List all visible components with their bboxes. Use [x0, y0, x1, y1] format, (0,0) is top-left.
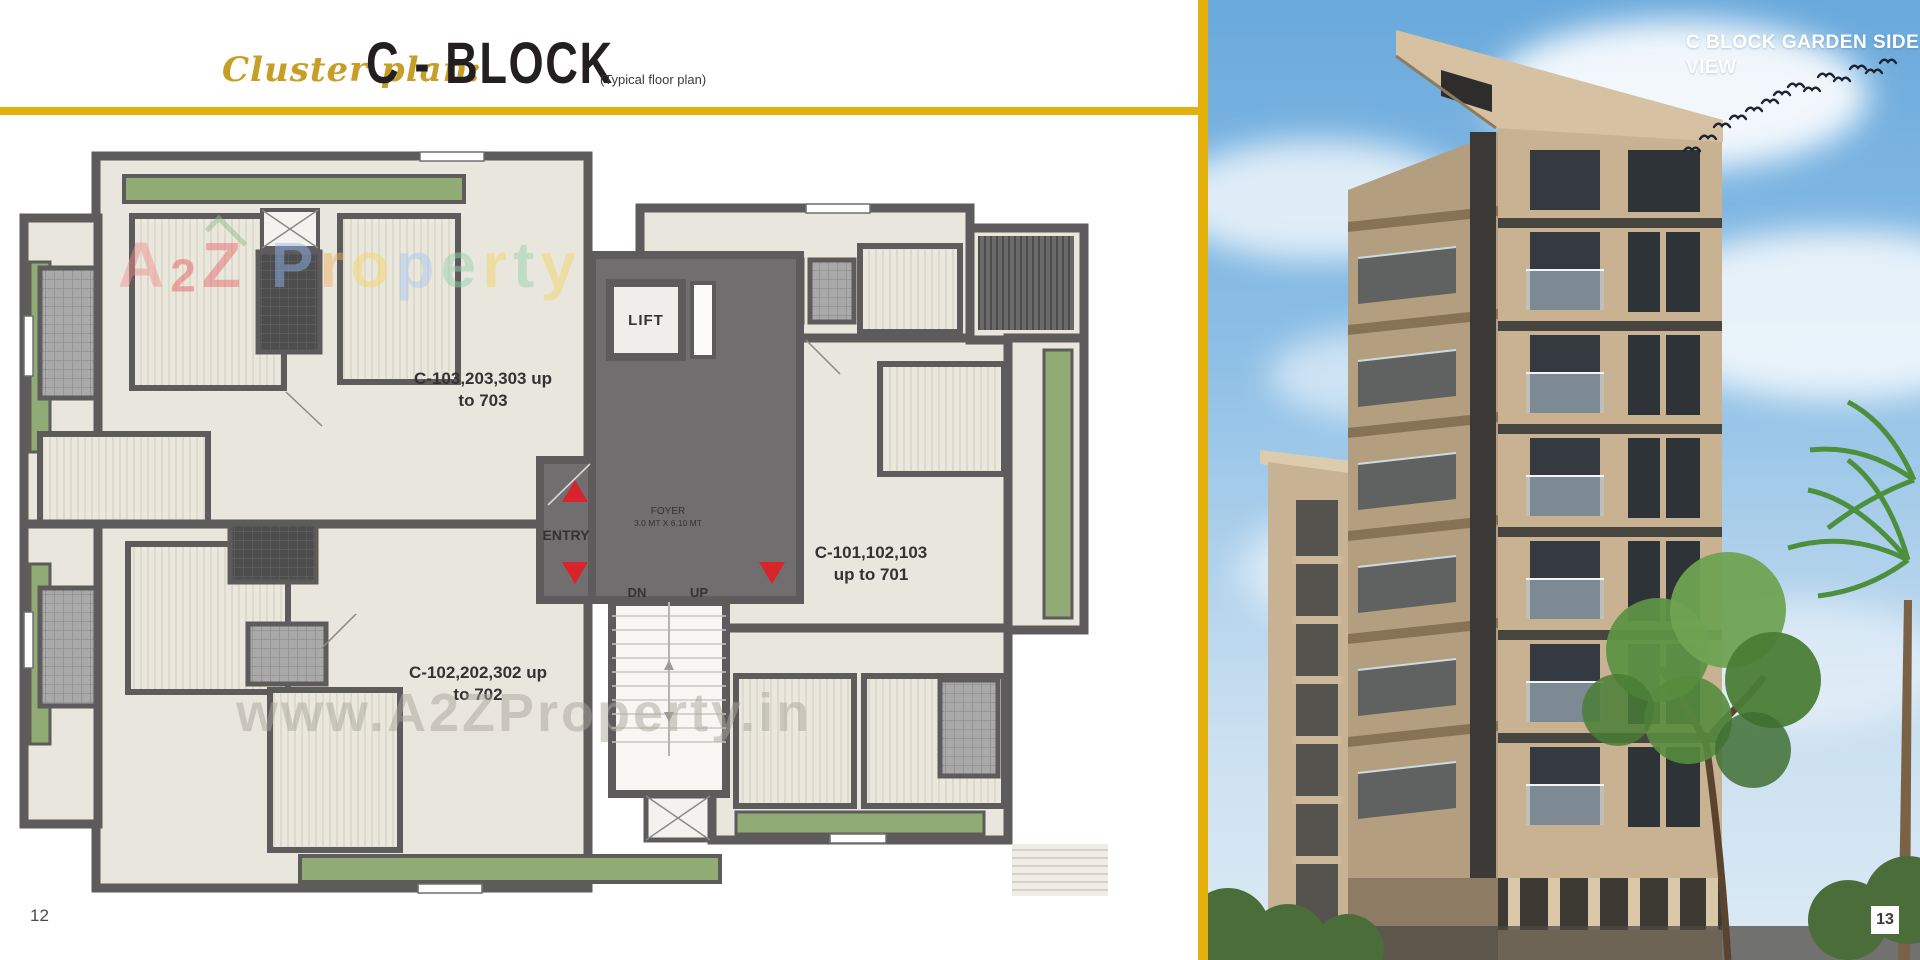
bathroom — [40, 268, 96, 398]
bedroom — [270, 690, 400, 850]
unit-c102-label: C-102,202,302 up — [409, 663, 547, 682]
foyer-dimensions: 3.0 MT X 6.10 MT — [634, 518, 702, 528]
bathroom — [40, 588, 96, 706]
lift-label: LIFT — [628, 312, 664, 329]
building-render — [1208, 0, 1920, 960]
building-photo-panel: C BLOCK GARDEN SIDE VIEW 13 — [1208, 0, 1920, 960]
stairs-up-label: UP — [690, 585, 708, 600]
palm-right — [1788, 402, 1914, 596]
floor-plan-drawing: LIFT ENTRY FOYER 3.0 MT X 6.10 MT DN UP … — [0, 0, 1198, 960]
gold-divider — [1198, 0, 1208, 960]
svg-text:to 702: to 702 — [453, 685, 502, 704]
brochure-spread: Cluster plan: C - BLOCK (Typical floor p… — [0, 0, 1920, 960]
balcony-south — [736, 812, 984, 834]
balcony-south — [300, 856, 720, 882]
staircase — [612, 602, 726, 840]
photo-caption: C BLOCK GARDEN SIDE VIEW — [1686, 30, 1919, 80]
bathroom — [258, 252, 320, 352]
entry-label: ENTRY — [543, 527, 591, 543]
bedroom — [340, 216, 458, 382]
lift-shaft — [692, 283, 714, 357]
building-main — [1348, 30, 1723, 960]
bathroom — [248, 624, 326, 684]
svg-text:up to 701: up to 701 — [834, 565, 909, 584]
page-number-right: 13 — [1876, 911, 1894, 929]
stairs-down-label: DN — [628, 585, 647, 600]
floor-plan-page: Cluster plan: C - BLOCK (Typical floor p… — [0, 0, 1198, 960]
bathroom — [940, 680, 998, 776]
balcony-north — [124, 176, 464, 202]
page-number-badge: 13 — [1871, 906, 1899, 934]
bedroom — [860, 246, 960, 332]
foyer-label: FOYER — [651, 506, 685, 517]
bedroom — [736, 676, 854, 806]
bathroom — [230, 524, 316, 582]
balcony-east — [1044, 350, 1072, 618]
svg-text:to 703: to 703 — [458, 391, 507, 410]
page-number-left: 12 — [30, 906, 49, 926]
unit-c101-label: C-101,102,103 — [815, 543, 927, 562]
bathroom — [810, 260, 854, 322]
bedroom — [880, 364, 1004, 474]
shaft-hatch — [978, 236, 1074, 330]
recess-strip — [1470, 132, 1496, 960]
outside-hatch — [1012, 844, 1108, 896]
unit-c103-label: C-103,203,303 up — [414, 369, 552, 388]
